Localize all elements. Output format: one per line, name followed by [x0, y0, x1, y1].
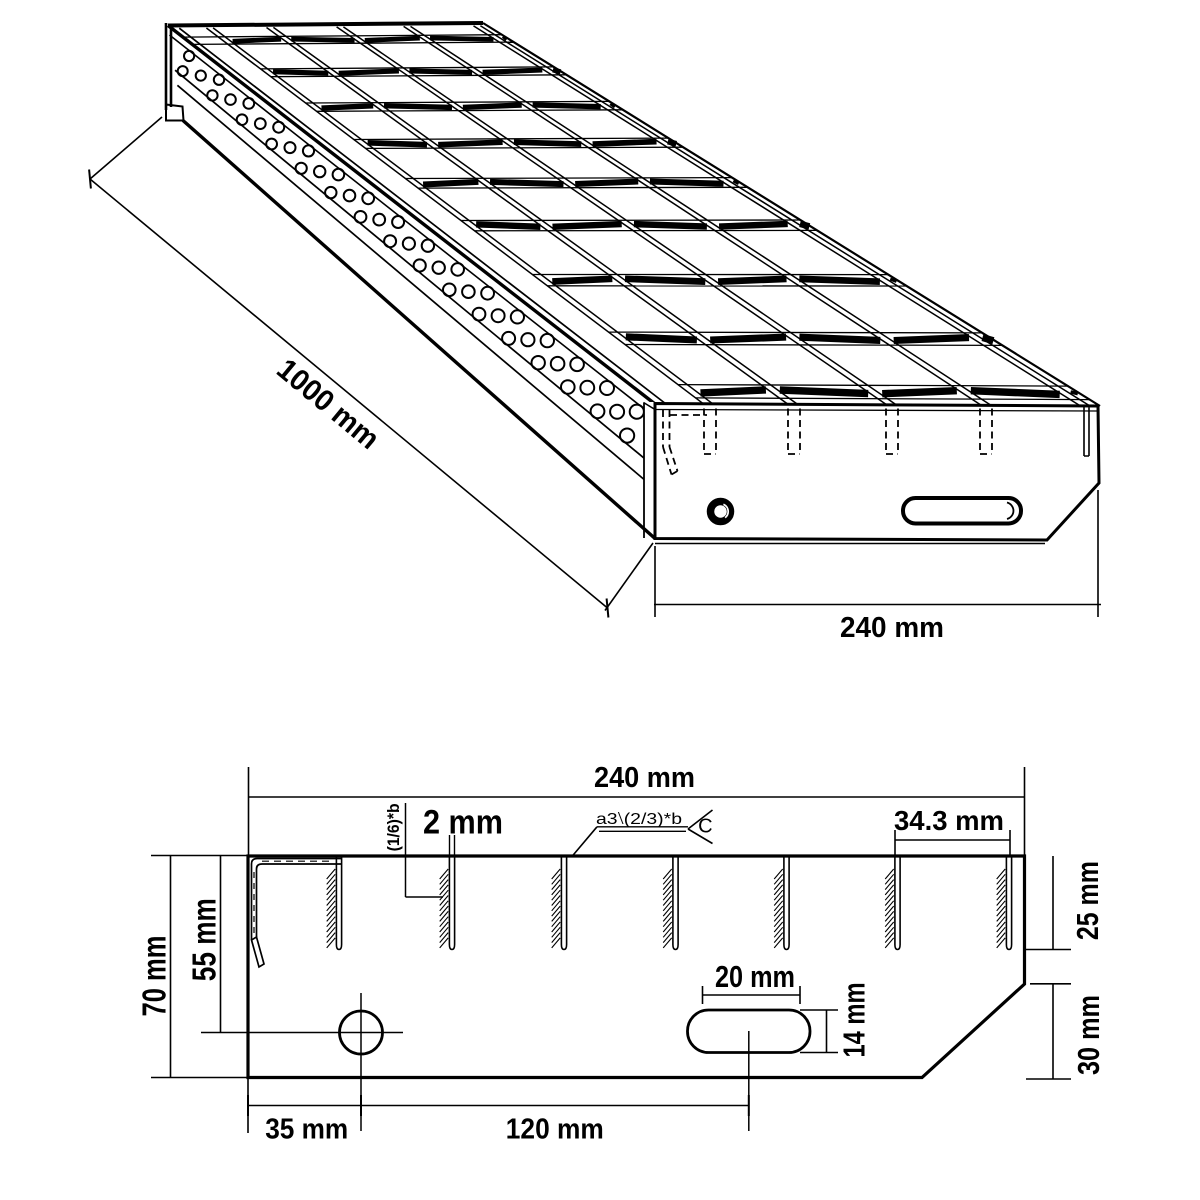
svg-text:25 mm: 25 mm [1070, 861, 1105, 940]
svg-text:35 mm: 35 mm [265, 1114, 348, 1146]
svg-text:34.3 mm: 34.3 mm [894, 805, 1004, 836]
svg-text:120 mm: 120 mm [506, 1114, 604, 1146]
svg-text:240 mm: 240 mm [594, 762, 695, 794]
svg-text:14 mm: 14 mm [837, 983, 872, 1058]
svg-text:(1/6)*b: (1/6)*b [385, 803, 403, 851]
svg-text:2 mm: 2 mm [423, 804, 503, 842]
svg-text:20 mm: 20 mm [715, 959, 795, 994]
svg-text:a3⧵(2/3)*b: a3⧵(2/3)*b [596, 811, 682, 828]
svg-text:C: C [698, 816, 712, 838]
svg-text:240 mm: 240 mm [840, 612, 944, 644]
svg-text:30 mm: 30 mm [1071, 995, 1106, 1075]
svg-text:55 mm: 55 mm [186, 898, 223, 981]
svg-text:70 mm: 70 mm [136, 936, 173, 1017]
